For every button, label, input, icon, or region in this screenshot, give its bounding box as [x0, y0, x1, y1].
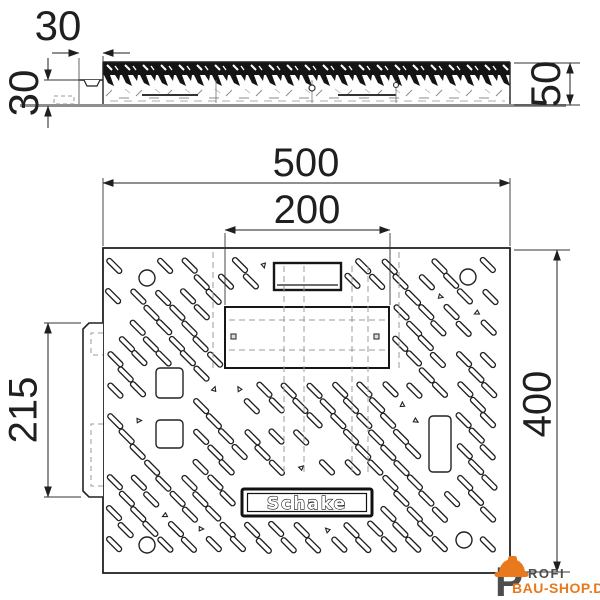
watermark-rofi: ROFI	[528, 566, 565, 581]
profibau-watermark: P ROFI BAU-SHOP.DE	[495, 556, 600, 600]
dim-label-lip-width: 30	[35, 2, 82, 49]
corner-circle	[139, 537, 155, 553]
left-tab	[83, 323, 103, 497]
hidden-frame-edge	[54, 96, 74, 104]
dimension-depth-400: 400	[514, 250, 570, 572]
technical-drawing-page: 30 30 50	[0, 0, 600, 600]
mounting-hole	[429, 416, 451, 472]
left-lip	[54, 58, 103, 104]
dim-label-total-height: 50	[522, 61, 569, 108]
fastener-dot	[231, 334, 236, 339]
profile-hole	[394, 83, 399, 88]
dimension-recess-215: 215	[2, 323, 81, 497]
dimension-lip-width: 30	[35, 2, 130, 62]
dim-label-opening: 200	[274, 188, 341, 232]
brand-plate: Schake	[242, 489, 372, 516]
mounting-hole	[156, 420, 183, 448]
dim-label-width: 500	[273, 141, 340, 185]
dimension-total-height: 50	[514, 61, 580, 108]
technical-drawing-canvas: 30 30 50	[0, 0, 600, 600]
watermark-line2: BAU-SHOP.DE	[512, 580, 600, 596]
profile-hole	[309, 85, 315, 91]
brand-plate-label: Schake	[267, 494, 347, 514]
plan-view: Schake	[83, 248, 510, 573]
dimension-frame-height: 30	[0, 58, 79, 128]
corner-circle	[460, 269, 476, 285]
anti-slip-serration-band	[103, 62, 510, 88]
seal-groove	[84, 80, 100, 86]
dim-label-recess: 215	[2, 377, 46, 444]
center-opening-large	[225, 307, 389, 368]
mounting-hole	[156, 368, 183, 398]
corner-circle	[139, 270, 155, 286]
corner-circle	[456, 532, 472, 548]
fastener-dot	[374, 334, 379, 339]
dim-label-depth: 400	[516, 371, 560, 438]
side-elevation-view	[20, 58, 566, 106]
dim-label-frame-height: 30	[0, 70, 47, 117]
